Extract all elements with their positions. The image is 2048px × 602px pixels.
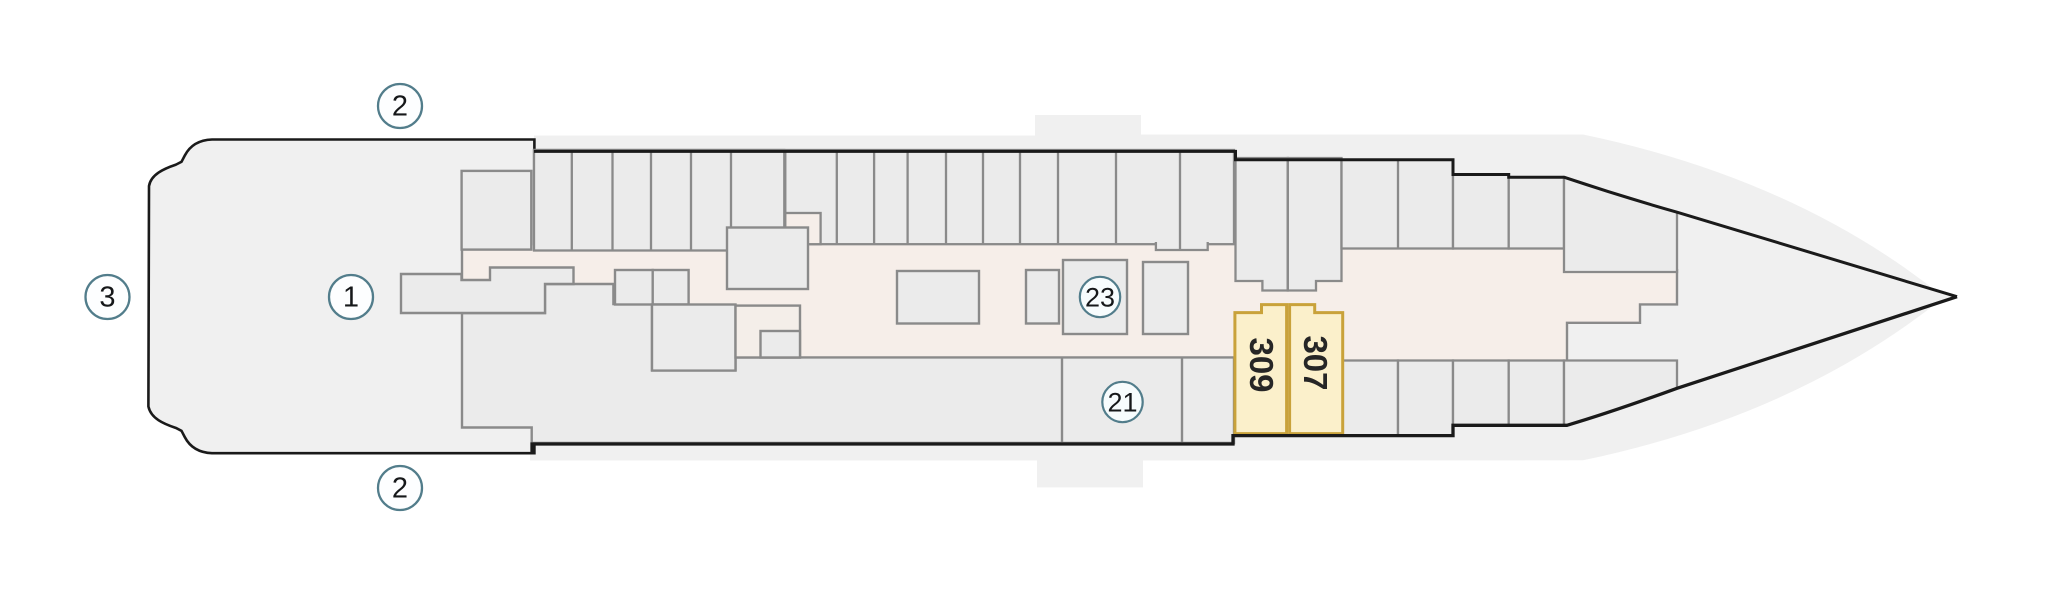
svg-text:2: 2 (392, 473, 408, 505)
svg-text:21: 21 (1107, 388, 1137, 418)
svg-text:3: 3 (99, 282, 115, 314)
svg-text:1: 1 (343, 282, 359, 314)
svg-text:307: 307 (1297, 335, 1334, 390)
svg-text:309: 309 (1243, 337, 1280, 392)
svg-text:23: 23 (1085, 283, 1115, 313)
svg-text:2: 2 (392, 91, 408, 123)
